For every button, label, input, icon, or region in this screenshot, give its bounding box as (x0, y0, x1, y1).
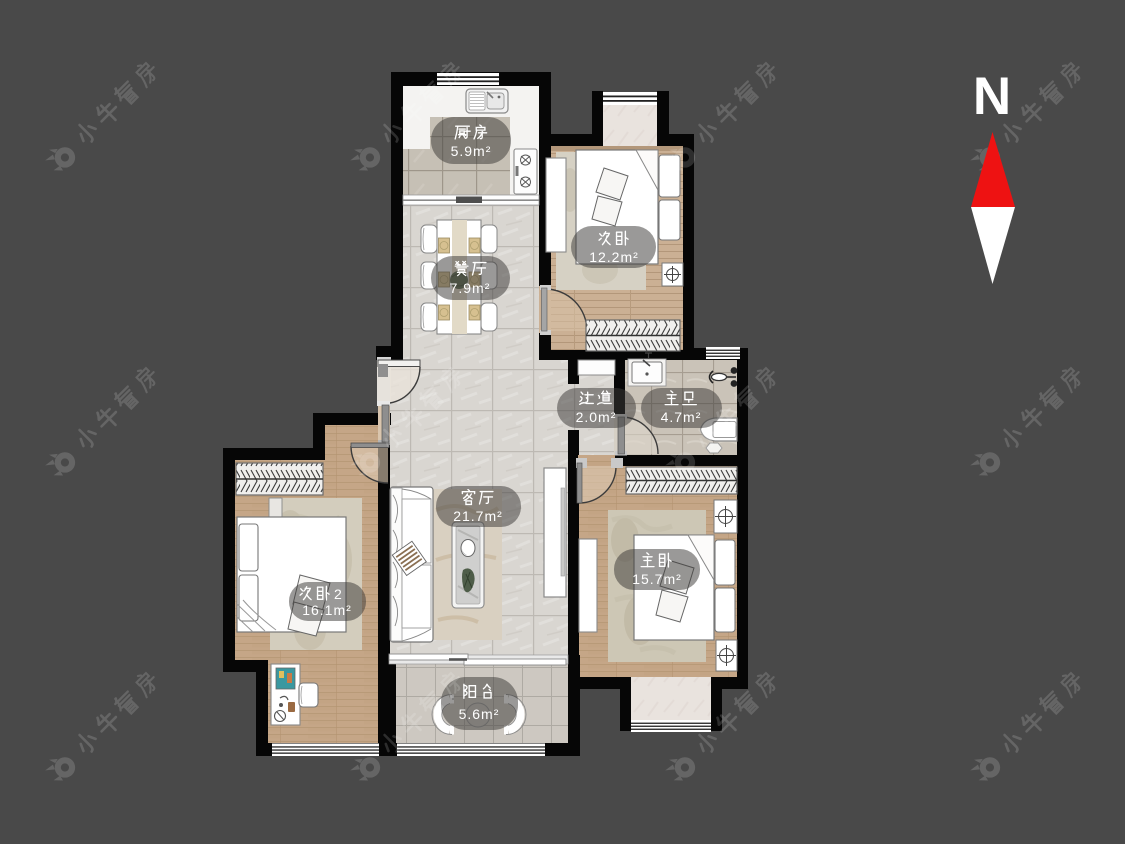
svg-text:2.0m²: 2.0m² (576, 409, 617, 425)
svg-text:16.1m²: 16.1m² (302, 602, 352, 618)
svg-text:7.9m²: 7.9m² (450, 280, 491, 296)
svg-text:5.9m²: 5.9m² (451, 143, 492, 159)
svg-text:15.7m²: 15.7m² (632, 571, 682, 587)
svg-text:12.2m²: 12.2m² (589, 249, 639, 265)
svg-text:N: N (973, 67, 1011, 126)
svg-text:4.7m²: 4.7m² (661, 409, 702, 425)
svg-text:21.7m²: 21.7m² (453, 508, 503, 524)
svg-text:5.6m²: 5.6m² (459, 706, 500, 722)
svg-text:2: 2 (334, 586, 342, 602)
